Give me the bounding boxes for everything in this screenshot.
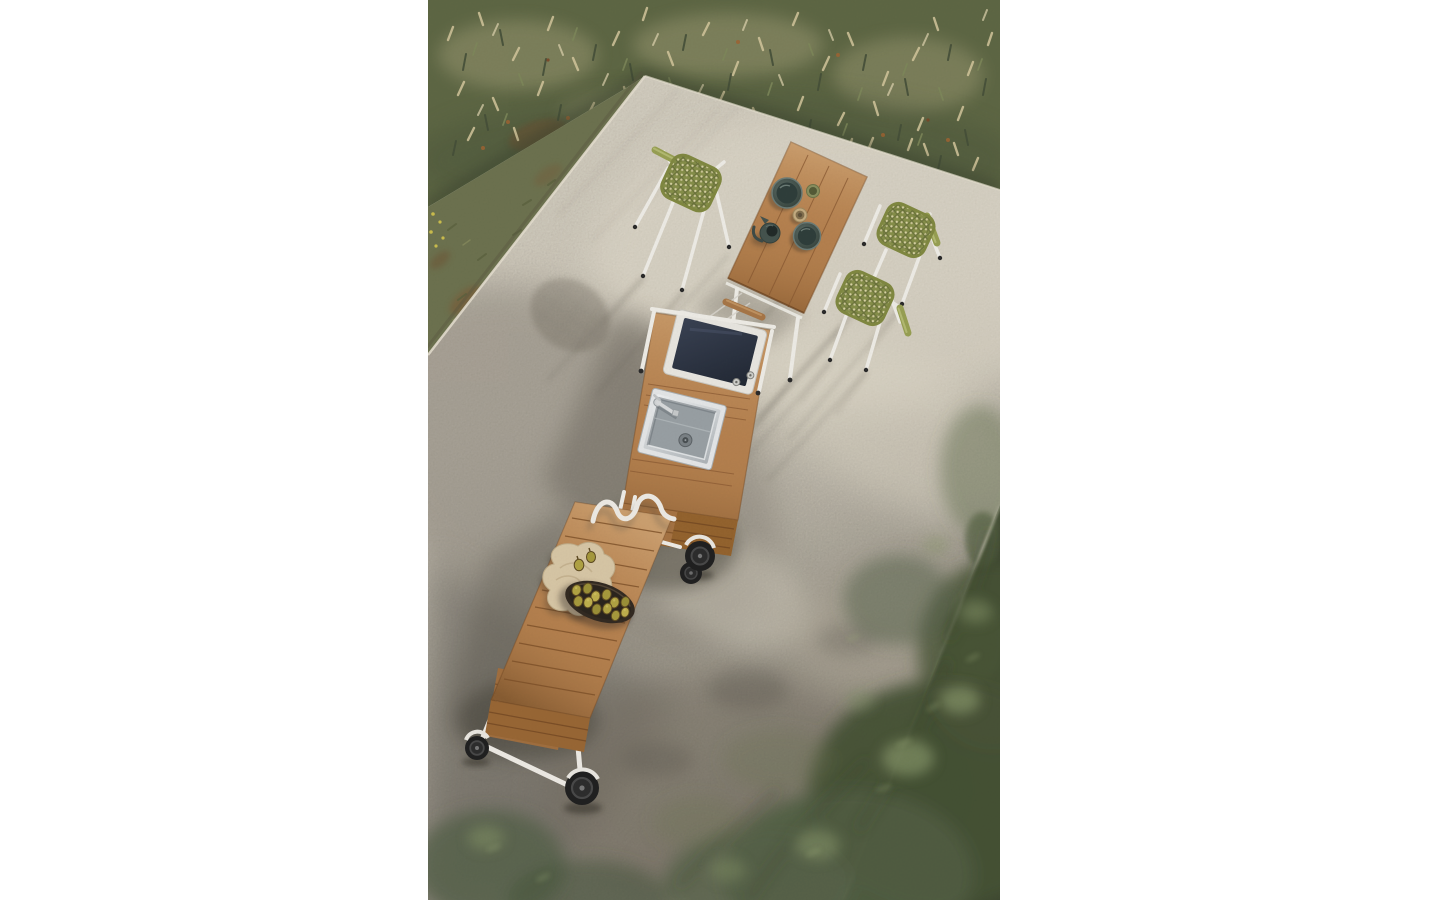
outdoor-kitchen-photo: Aerial view of an outdoor teak kitchen a… bbox=[428, 0, 1000, 900]
photo-canvas bbox=[428, 0, 1000, 900]
photo-grain bbox=[428, 0, 1000, 900]
page-background: Aerial view of an outdoor teak kitchen a… bbox=[0, 0, 1429, 900]
